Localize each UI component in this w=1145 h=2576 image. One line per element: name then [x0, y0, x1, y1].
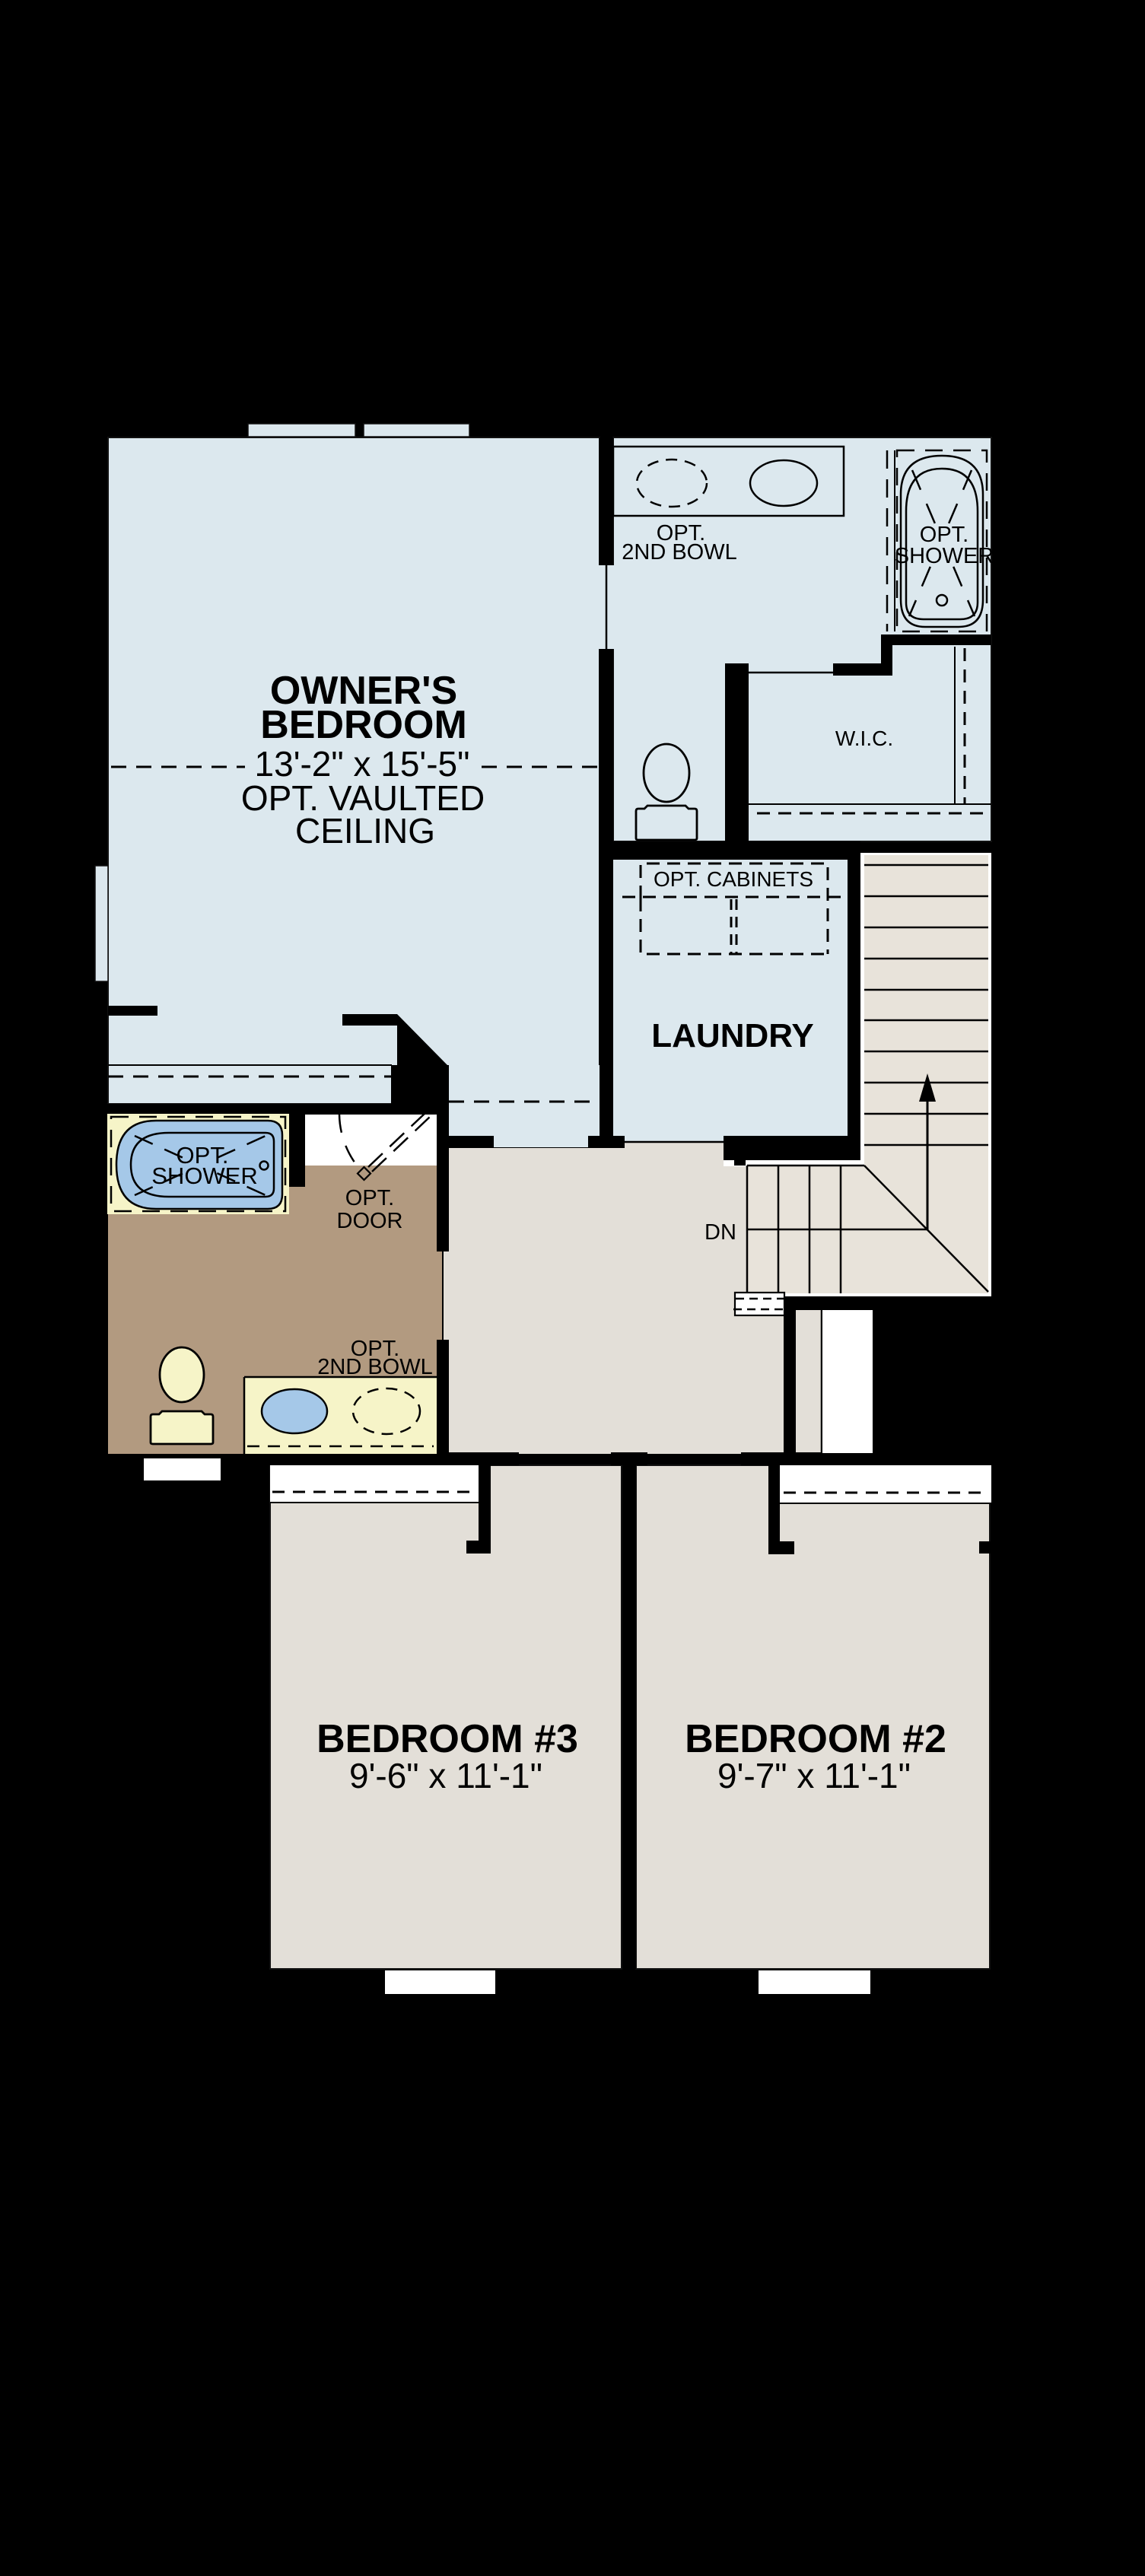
svg-text:DN: DN: [704, 1220, 736, 1245]
svg-text:2ND BOWL: 2ND BOWL: [317, 1355, 432, 1379]
svg-text:BEDROOM #3: BEDROOM #3: [316, 1717, 578, 1761]
svg-text:OPT. CABINETS: OPT. CABINETS: [654, 867, 813, 891]
svg-text:BEDROOM #2: BEDROOM #2: [685, 1717, 946, 1761]
svg-text:LAUNDRY: LAUNDRY: [651, 1017, 813, 1054]
svg-text:DOOR: DOOR: [337, 1209, 403, 1233]
svg-text:9'-6" x 11'-1": 9'-6" x 11'-1": [349, 1756, 542, 1795]
svg-text:2ND BOWL: 2ND BOWL: [622, 540, 736, 564]
svg-text:BEDROOM: BEDROOM: [260, 703, 467, 747]
svg-text:OPT.: OPT.: [345, 1186, 394, 1210]
svg-text:9'-7" x 11'-1": 9'-7" x 11'-1": [717, 1756, 911, 1795]
svg-text:SHOWER: SHOWER: [151, 1162, 258, 1189]
svg-text:W.I.C.: W.I.C.: [835, 727, 893, 750]
svg-text:SHOWER: SHOWER: [895, 544, 994, 568]
svg-text:CEILING: CEILING: [295, 811, 435, 851]
